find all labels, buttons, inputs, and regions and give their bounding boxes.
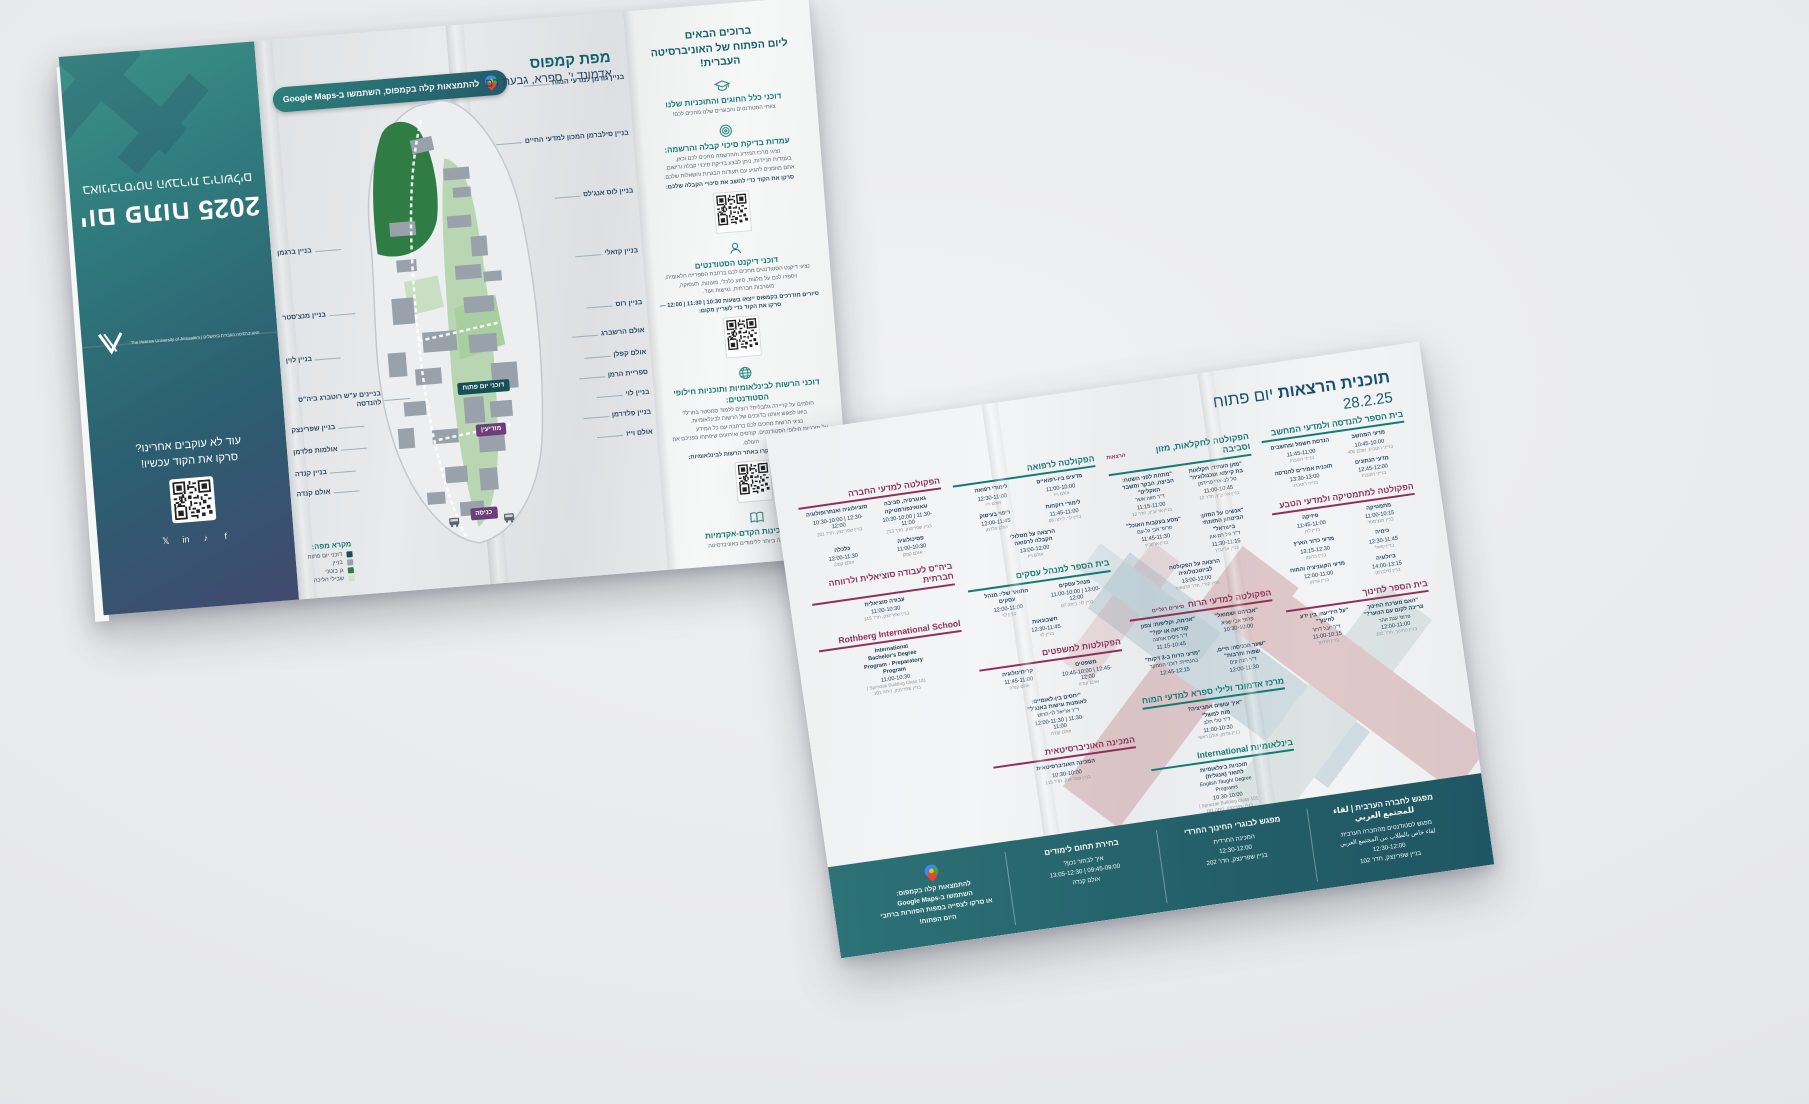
faculty-section: מרכז אדמונד ולילי ספרא למדעי המוח "איך ע… [1141, 675, 1291, 748]
building-label: אולם וייז [626, 429, 653, 438]
legend-swatch [347, 559, 353, 565]
band-block: מפגש לבוגרי החינוך החרדי המכינה החרדית12… [1156, 808, 1317, 903]
building-label: בניין לוין [286, 356, 313, 365]
building-label: בניין לוס אנג'לס [583, 187, 634, 198]
faculty-section: הפקולטה למדעי הרוח סיורים רגליים "אברהם … [1128, 587, 1282, 687]
band-lines: להתמצאות קלה בקמפוס:השתמשו ב-Google Maps… [870, 875, 1002, 934]
university-logo: האוניברסיטה העברית בירושלים | The Hebrew… [95, 320, 261, 359]
campus-map-drawing: דוכני יום פתוח מודיעין כניסה [320, 88, 605, 559]
lecture-entry: תוכנית אמירים להנדסה 13:30-13:00 בנייני … [1272, 463, 1336, 492]
follow-us-block: עוד לא עוקבים אחרינו? סרקו את הקוד עכשיו… [90, 430, 294, 552]
lecture-entry: גאוגרפיה, סביבה וגאואינפורמטיקה 10:30-10… [874, 494, 940, 536]
social-icons: f♪in𝕏 [98, 526, 294, 553]
building-labels-right: בניין גודמן למדעי המוחבניין סילברמן המכו… [254, 12, 623, 42]
lecture-entry: מדעי המחשב 10:45-10:00 בנייני רוטברג, או… [1337, 428, 1401, 457]
lecture-entry: International Bachelor's Degree Program … [860, 642, 928, 698]
lecture-entry: לימודי רוקחות 11:45-11:00 בניין לוי, כית… [1032, 497, 1096, 526]
student-icon [727, 240, 744, 255]
faculty-section: בית הספר למנהל עסקים מנהל עסקים 11:00-10… [966, 557, 1119, 648]
photo-backdrop: יום פתוח 2025 באוניברסיטה העברית בירושלי… [0, 0, 1809, 1104]
faculty-entries: "מזון העתיד: חקלאות בת קיימא וטכנולוגיה"… [1110, 459, 1270, 599]
lecture-entry: סוציולוגיה ואנתרופולוגיה 10:30-10:00 | 1… [806, 504, 872, 546]
open-book-icon [748, 510, 765, 525]
building-label: בניין קנדה [295, 469, 327, 479]
graduation-cap-icon [714, 78, 731, 93]
lecture-entry: "אנימה, וקליפות: צפון קוריאה או יפן?" ד"… [1137, 616, 1202, 653]
legend-items: דוכני יום פתוח בניין גן בוטני שבילי הליכ… [307, 551, 354, 584]
legend-title: מקרא מפה: [307, 539, 352, 552]
welcome-section: עמדות בדיקת סיכוי קבלה והרשמה: נציגי מרכ… [645, 118, 815, 239]
map-legend: מקרא מפה: דוכני יום פתוח בניין גן בוטני [307, 539, 355, 584]
building-label: ספריית הרמן [608, 369, 649, 379]
campus-map-panel: להתמצאות קלה בקמפוס, השתמשו ב-Google Map… [254, 12, 668, 600]
lecture-entry: "מדעי הרוח ב-3 דקות" בהנחיית: דוכני המחק… [1142, 649, 1207, 686]
faculty-title: בית הספר לחינוך [1362, 578, 1429, 598]
welcome-section: דוכני כלל החוגים והתוכניות שלנו צוותי הס… [641, 73, 805, 122]
lecture-entry: כלכלה 12:00-11:30 אולם קפלן [811, 542, 875, 571]
lecture-entry: משפטים 10:45-10:00 | 12:45-12:00 אולם קנ… [1055, 656, 1120, 691]
lecture-entry: "מתחת לפני השטח: הביצה, הבקר ומשבר האקלי… [1116, 470, 1183, 520]
lecture-entry: מדעים ביו-רפואיים 11:00-10:00 אולם וייז [1028, 472, 1092, 501]
faculty-entries: משפטים 10:45-10:00 | 12:45-12:00 אולם קנ… [980, 655, 1133, 746]
legend-label: שבילי הליכה [314, 576, 345, 584]
building-label: אולם הרשברג [601, 327, 645, 337]
building-label: אולם קנדה [296, 489, 330, 499]
legend-item: שבילי הליכה [309, 575, 354, 585]
faculty-note: הרצאות [1106, 453, 1126, 462]
legend-swatch [347, 567, 353, 573]
building-label: בניין ברגמן [277, 247, 312, 257]
lecture-entry: כימיה 12:30-11:45 בניין קזאלי [1351, 525, 1415, 554]
section-qr-code [713, 190, 752, 234]
schedule-brochure: תוכנית הרצאות יום פתוח 28.2.25 בית הספר … [766, 342, 1495, 959]
faculty-section: המכינה האוניברסיטאית המכינה האוניברסיטאי… [992, 734, 1140, 793]
legend-label: גן בוטני [325, 568, 344, 575]
faculty-section: הפקולטה למתמטיקה ולמדעי הטבע מתמטיקה 11:… [1270, 481, 1425, 590]
university-logo-icon [95, 331, 127, 359]
faculty-title: הפקולטות למשפטים [1041, 637, 1121, 659]
lecture-entry: ביולוגיה 14:00-13:15 בניין סילברמן [1355, 550, 1419, 579]
university-logo-text: האוניברסיטה העברית בירושלים | The Hebrew… [131, 330, 260, 346]
lecture-entry: מדעי כדור הארץ 13:15-12:30 בניין ברגמן [1283, 535, 1347, 564]
lecture-entry: הרצאה על הפקולטה לביוטכנולוגיה 13:00-12:… [1163, 557, 1228, 593]
social-icon: f [220, 531, 232, 543]
faculty-section: ביה"ס לעבודה סוציאלית ולרווחה חברתית עבו… [809, 561, 958, 630]
band-block: להתמצאות קלה בקמפוס:השתמשו ב-Google Maps… [855, 852, 1016, 947]
lecture-entry: פסיכולוגיה 11:00-10:30 אולם קפלן [879, 533, 943, 562]
lecture-entry: הנדסת חשמל ומחשבים 11:45-11:00 בנייני רו… [1269, 438, 1333, 467]
lecture-entry: "איך עושים אמביציה? מוח למשל" ד"ר טלי חל… [1184, 699, 1250, 742]
faculty-section: הפקולטה לחקלאות, מזון וסביבה הרצאות "מזו… [1105, 431, 1269, 599]
globe-icon [737, 366, 754, 381]
building-label: בניין פלדרמן [612, 409, 652, 419]
bus-icon [503, 512, 516, 524]
social-qr-code [169, 476, 216, 523]
legend-label: בניין [332, 560, 343, 567]
faculty-section: הפקולטה למדעי החברה גאוגרפיה, סביבה וגאו… [797, 475, 951, 572]
faculty-title: הפקולטה לרפואה [1026, 453, 1095, 473]
section-qr-code [734, 460, 773, 504]
building-label: בניין קזאלי [604, 247, 638, 257]
lecture-entry: פיזיקה 11:45-11:00 בניין לוין [1279, 510, 1343, 539]
band-block: בחירת תחום לימודים איך לבחור נכון?09:45-… [1006, 830, 1167, 925]
faculty-section: בית הספר לחינוך "האם מערכת החינוך צריכה … [1284, 578, 1434, 651]
welcome-section: דוכני דיקנט הסטודנטים נציגי דיקנט הסטודנ… [654, 235, 825, 364]
building-labels-left: בניין ברגמןבניין מנצ'סטרבניין לויןבנייני… [254, 12, 623, 42]
building-label: בניין לוי [625, 389, 649, 398]
lecture-entry: "האם מערכת החינוך צריכה לקום עם הנוער?" … [1362, 597, 1428, 640]
band-block: מפגש לחברה הערבית | لقاء للمجتمع العربي … [1307, 787, 1467, 882]
faculty-section: הפקולטה לרפואה מדעים ביו-רפואיים 11:00-1… [951, 453, 1107, 569]
map-brochure: יום פתוח 2025 באוניברסיטה העברית בירושלי… [59, 0, 853, 615]
lecture-entry: מנהל עסקים 11:00-10:00 | 13:00-12:00 בני… [1043, 576, 1108, 612]
legend-swatch [348, 575, 354, 581]
legend-swatch [346, 551, 352, 557]
google-maps-pin-icon [923, 864, 939, 883]
social-icon: in [180, 534, 192, 546]
faculty-section: הפקולטות למשפטים משפטים 10:45-10:00 | 12… [977, 637, 1132, 746]
faculty-entries: מתמטיקה 11:00-10:15 בניין מנצ'סטר פיזיקה… [1273, 499, 1426, 590]
faculty-note: סיורים רגליים [1152, 604, 1185, 615]
social-icon: ♪ [200, 532, 212, 544]
building-label: בניין רוס [615, 299, 642, 308]
lecture-entry: עבודה סוציאלית 11:00-10:30 בניין שפרינצק… [854, 595, 918, 624]
section-qr-code [723, 315, 762, 359]
lecture-entry: מדעי הנתונים 12:45-12:00 בנייני רוטברג [1341, 453, 1405, 482]
bus-icon [448, 516, 461, 528]
faculty-entries: מדעים ביו-רפואיים 11:00-10:00 אולם וייז … [954, 471, 1108, 569]
info-badge: מודיעין [476, 422, 507, 437]
lecture-entry: מדעי הקוגניציה והמוח 12:00-11:00 בניין ג… [1286, 560, 1350, 589]
lecture-entry: "על הידיעה: בין ידע לחינוך" ד"ר יובל דרו… [1293, 607, 1359, 650]
faculty-section: Rothberg International School Internatio… [817, 618, 969, 704]
social-icon: 𝕏 [160, 535, 172, 547]
building-label: אולם קפלן [613, 349, 646, 359]
lecture-entry: מתמטיקה 11:00-10:15 בניין מנצ'סטר [1348, 500, 1412, 529]
target-icon [717, 123, 734, 138]
lecture-entry: "מסע בעקבות האוכל" פרופ' אבי גל-עם 11:45… [1123, 516, 1190, 566]
